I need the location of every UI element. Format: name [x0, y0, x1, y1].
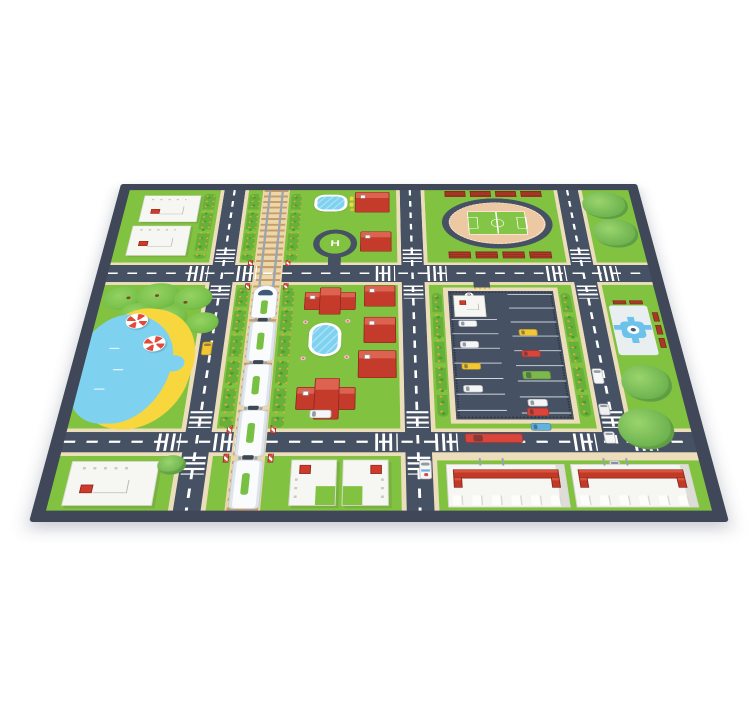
parked-car-white [603, 431, 617, 443]
water-wave [113, 369, 124, 370]
warehouse-roof-return [551, 477, 561, 488]
fountain-pool [308, 323, 342, 357]
car-yellow [201, 342, 213, 355]
large-red-roof-house [304, 288, 357, 315]
fountain-tab [627, 317, 635, 323]
sun-lounger [350, 203, 354, 207]
train-car [234, 410, 269, 457]
fountain-tab [614, 325, 624, 330]
red-roof-house [355, 192, 390, 212]
rooftop-vents [83, 467, 133, 469]
park-bench [652, 312, 660, 321]
parked-car-yellow [461, 363, 481, 370]
parked-truck-green [522, 371, 551, 379]
rooftop-vents [152, 199, 187, 200]
parked-car-white [598, 404, 611, 416]
red-roof-house [364, 317, 397, 343]
chimney [365, 235, 370, 238]
warehouse-roof-return [453, 477, 462, 488]
rooftop-vents [381, 478, 384, 498]
tree [618, 365, 676, 402]
ambulance-cross [424, 473, 428, 476]
mat-surface: H [46, 190, 712, 510]
chimney [302, 391, 309, 396]
rooftop-pipe [466, 304, 479, 310]
crosswalk [435, 434, 458, 451]
fountain-tab [642, 325, 652, 330]
helipad-letter: H [330, 239, 340, 249]
park-bench [612, 300, 626, 304]
ambulance-stripe [421, 469, 430, 471]
tree [580, 192, 632, 219]
red-roof-house [358, 350, 397, 378]
umbrella-pole [135, 320, 140, 323]
chimney [310, 295, 316, 299]
warehouse-building [570, 464, 699, 507]
bleacher [475, 252, 498, 259]
water-wave [109, 348, 120, 349]
roof-wing [319, 288, 342, 315]
city-play-mat: H [29, 184, 729, 522]
parked-bus-red [465, 434, 524, 443]
bleacher [502, 252, 525, 259]
crosswalk [427, 266, 447, 281]
train-car [240, 364, 273, 407]
rooftop-unit [370, 465, 382, 474]
product-photo-stage: H [0, 0, 752, 703]
pitch-center-circle [491, 219, 505, 227]
l-shaped-building [341, 460, 388, 506]
crosswalk [156, 434, 182, 451]
l-shaped-building [288, 460, 337, 506]
crosswalk [406, 411, 429, 428]
fountain-jet [630, 328, 636, 332]
flower-bed [345, 319, 350, 322]
building-notch [315, 486, 335, 505]
parked-car-red [521, 350, 541, 357]
train-roof-stripe [251, 376, 260, 394]
bleacher [448, 252, 471, 259]
warehouse-vents [452, 496, 563, 506]
chimney [364, 355, 370, 359]
crosswalk [403, 285, 423, 298]
rooftop-vents [294, 478, 298, 498]
bleacher [495, 191, 517, 197]
train-car [245, 322, 277, 362]
building-notch [342, 486, 362, 505]
flat-roof-building [138, 196, 201, 222]
red-roof-house [360, 232, 392, 252]
parked-car-white [458, 320, 477, 326]
soccer-pitch [467, 211, 528, 234]
rooftop-vents [140, 229, 176, 230]
crosswalk [576, 285, 598, 298]
crosswalk [573, 434, 598, 451]
flower-bed [350, 209, 354, 211]
crosswalk [215, 250, 236, 262]
train-roof-stripe [240, 473, 250, 495]
warehouse-roof-return [676, 477, 687, 488]
crosswalk [546, 266, 568, 281]
park-bench [658, 338, 667, 348]
red-roof-house [364, 285, 396, 306]
parked-car-blue [530, 423, 551, 431]
crosswalk [376, 266, 396, 281]
bleacher [444, 191, 465, 197]
parking-entrance-marking [474, 288, 491, 290]
pitch-goal-box [467, 217, 478, 229]
pitch-goal-box [516, 217, 528, 229]
chimney [369, 289, 375, 293]
crossing-gate [248, 260, 254, 266]
park-bench [629, 300, 643, 304]
flower-bed [303, 320, 308, 324]
crosswalk [403, 250, 422, 262]
rooftop-pipe [159, 206, 184, 214]
flat-roof-building [61, 461, 160, 506]
car-red [527, 408, 550, 416]
crosswalk [570, 250, 591, 262]
rooftop-unit [299, 465, 311, 474]
parked-car-white [527, 399, 548, 406]
crosswalk [597, 266, 620, 281]
train-roof-stripe [256, 333, 265, 350]
train-windshield [258, 290, 273, 296]
ambulance-van [419, 460, 432, 480]
sun-lounger [350, 197, 354, 201]
flower-bed [300, 356, 305, 360]
flat-roof-building [125, 226, 191, 256]
chimney [360, 195, 365, 198]
train-roof-stripe [246, 423, 256, 443]
crosswalk [236, 266, 257, 281]
flower-bed [344, 355, 349, 359]
warehouse-building [446, 464, 571, 507]
car-white [309, 410, 331, 418]
train-roof-stripe [260, 300, 268, 314]
helipad: H [312, 230, 357, 258]
rooftop-pipe [147, 238, 173, 247]
swimming-pool [314, 195, 348, 212]
water-wave [94, 388, 105, 389]
pool-water [311, 325, 338, 354]
crossing-gate [267, 454, 273, 463]
parked-car-yellow [518, 329, 538, 336]
warehouse-roof-stripe [578, 469, 686, 478]
rooftop-unit [459, 300, 466, 305]
parked-car-white [460, 341, 480, 348]
bleacher [529, 252, 552, 259]
park-bench [655, 325, 663, 334]
sidewalk [437, 456, 699, 460]
train-engine [250, 285, 278, 318]
crosswalk [187, 266, 209, 281]
rooftop-pipe [93, 480, 130, 493]
bleacher [520, 191, 542, 197]
chimney [369, 321, 375, 325]
fountain-tab [632, 337, 640, 343]
warehouse-roof-stripe [453, 469, 560, 478]
parked-car-white [463, 385, 483, 392]
tree [590, 219, 642, 248]
crosswalk [188, 411, 213, 428]
pool-water [317, 197, 345, 210]
rooftop-unit [79, 485, 94, 494]
train-car [228, 460, 264, 509]
crosswalk [375, 434, 398, 451]
crossing-gate [223, 454, 230, 463]
bleacher [470, 191, 491, 197]
umbrella-pole [152, 342, 157, 345]
parking-office [453, 295, 486, 317]
warehouse-vents [580, 496, 692, 506]
warehouse-roof-return [579, 477, 589, 488]
